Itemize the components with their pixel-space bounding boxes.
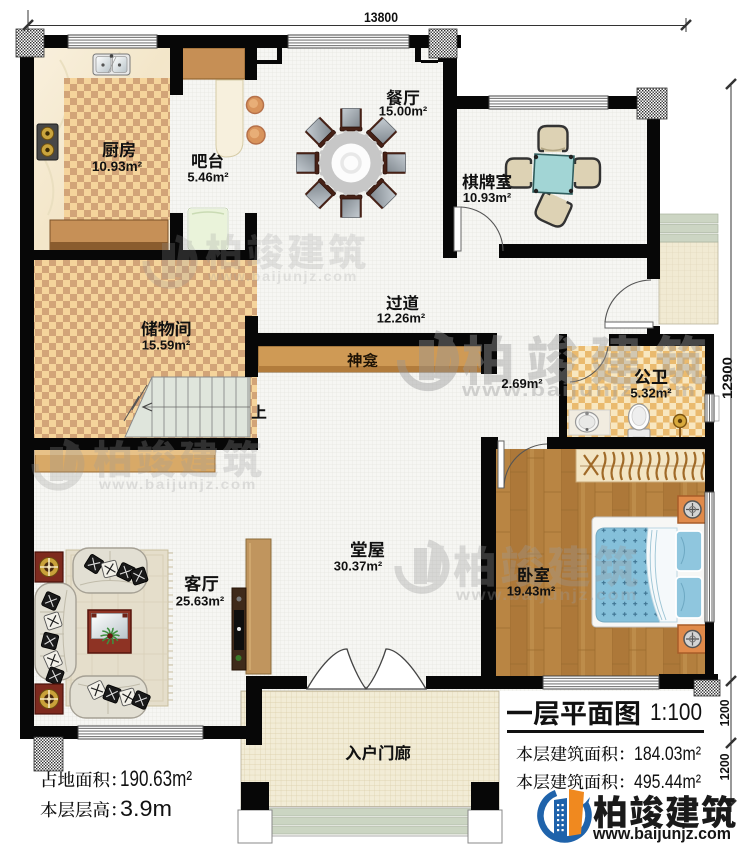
svg-text:2.69m²: 2.69m² — [501, 376, 543, 391]
svg-text:15.59m²: 15.59m² — [142, 338, 191, 353]
svg-text:10.93m²: 10.93m² — [92, 159, 143, 174]
svg-text:www.baijunjz.com: www.baijunjz.com — [98, 476, 257, 492]
svg-text:15.00m²: 15.00m² — [379, 104, 428, 119]
svg-text:25.63m²: 25.63m² — [176, 594, 225, 609]
svg-text:5.32m²: 5.32m² — [630, 386, 672, 401]
svg-text:1200: 1200 — [717, 700, 732, 727]
svg-text:495.44m²: 495.44m² — [634, 772, 701, 793]
svg-text:www.baijunjz.com: www.baijunjz.com — [592, 824, 731, 843]
svg-text:1200: 1200 — [717, 754, 732, 781]
svg-text:19.43m²: 19.43m² — [507, 584, 556, 599]
svg-text:12.26m²: 12.26m² — [377, 311, 426, 326]
svg-text:5.46m²: 5.46m² — [187, 170, 229, 185]
svg-text:184.03m²: 184.03m² — [634, 744, 701, 765]
svg-text:13800: 13800 — [364, 9, 398, 25]
svg-text:190.63m²: 190.63m² — [120, 766, 192, 791]
svg-text:10.93m²: 10.93m² — [463, 190, 512, 205]
svg-text:1:100: 1:100 — [650, 699, 702, 726]
svg-text:12900: 12900 — [719, 357, 735, 399]
svg-text:30.37m²: 30.37m² — [334, 559, 383, 574]
svg-text:www.baijunjz.com: www.baijunjz.com — [207, 268, 358, 284]
svg-text:3.9m: 3.9m — [120, 796, 172, 821]
